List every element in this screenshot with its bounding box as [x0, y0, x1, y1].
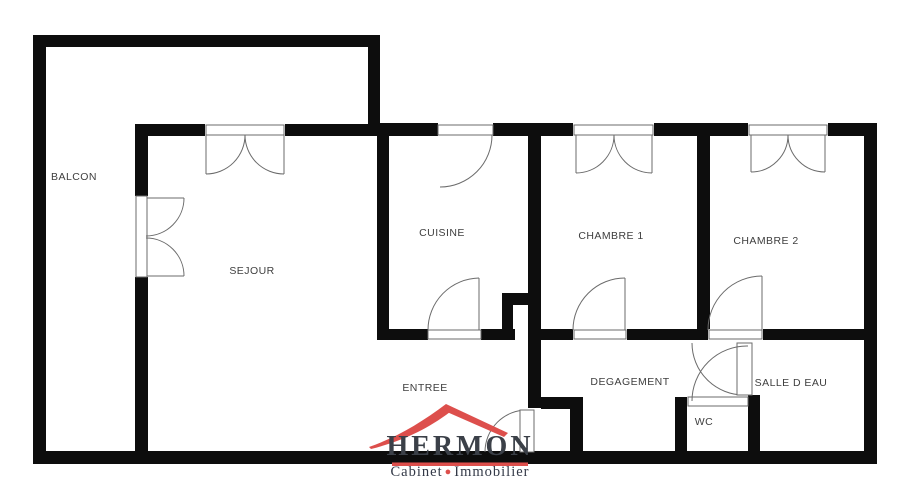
- balcony-french-door-west: [136, 196, 184, 277]
- walls: [33, 35, 877, 464]
- floor-plan: BALCON SEJOUR CUISINE CHAMBRE 1 CHAMBRE …: [0, 0, 916, 478]
- wall-central-vertical: [528, 124, 541, 408]
- logo-name: HERMON: [386, 433, 533, 461]
- cuisine-window: [438, 125, 493, 187]
- wall-outer-top-left: [33, 35, 380, 47]
- wall-hall-north-segment: [627, 329, 708, 340]
- logo-tagline-left: Cabinet: [390, 464, 442, 478]
- wall-outer-left: [33, 35, 46, 464]
- logo-dot-icon: ●: [445, 466, 453, 478]
- chambre1-window: [574, 125, 653, 173]
- room-label-wc: WC: [695, 416, 713, 428]
- wall-hall-north-segment: [541, 329, 573, 340]
- room-label-salle-d-eau: SALLE D EAU: [755, 377, 828, 389]
- cuisine-door: [428, 278, 481, 339]
- wall-outer-right: [864, 123, 877, 464]
- wall-sejour-cuisine: [377, 124, 389, 340]
- wall-sejour-west-segment: [135, 277, 148, 464]
- room-label-degagement: DEGAGEMENT: [590, 376, 669, 388]
- room-label-chambre-1: CHAMBRE 1: [578, 230, 643, 242]
- room-label-balcon: BALCON: [51, 171, 97, 183]
- wall-cuisine-bottom-segment: [377, 329, 428, 340]
- chambre1-door: [573, 278, 626, 339]
- wall-sejour-west-segment: [135, 124, 148, 196]
- room-label-cuisine: CUISINE: [419, 227, 465, 239]
- sejour-balcony-door-top: [206, 125, 284, 174]
- wall-closet-east: [570, 397, 583, 451]
- logo-tagline: Cabinet●Immobilier: [390, 465, 529, 478]
- chambre2-window: [749, 125, 827, 172]
- room-label-chambre-2: CHAMBRE 2: [733, 235, 798, 247]
- wall-top-segment: [828, 123, 877, 136]
- salle-d-eau-door: [692, 343, 752, 395]
- wall-chambre-divider: [697, 124, 710, 329]
- wall-outer-top-connector: [368, 35, 380, 136]
- chambre2-door: [708, 276, 762, 339]
- wall-wc-west: [675, 397, 687, 451]
- wall-hall-north-segment: [763, 329, 864, 340]
- room-label-entree: ENTREE: [402, 382, 447, 394]
- logo-tagline-right: Immobilier: [454, 464, 529, 478]
- room-label-sejour: SEJOUR: [229, 265, 274, 277]
- wall-wc-east: [748, 395, 760, 451]
- wall-sejour-top-segment: [285, 124, 380, 136]
